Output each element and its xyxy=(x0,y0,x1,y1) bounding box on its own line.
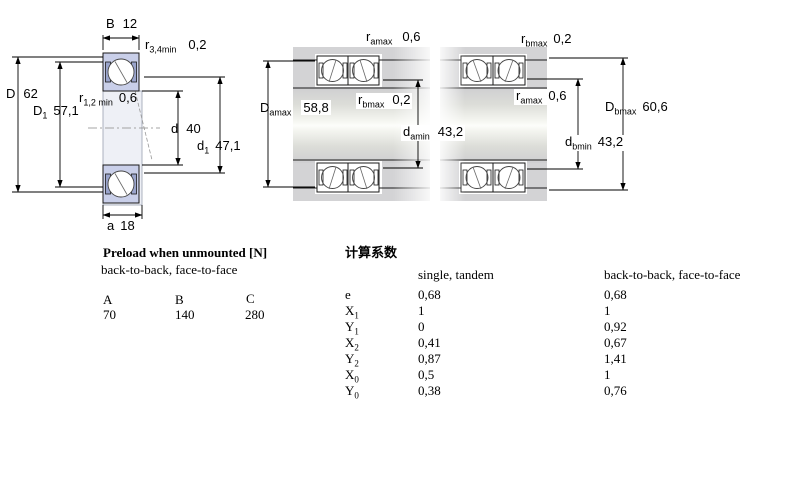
factor-row-Y1: Y100,92 xyxy=(345,319,775,335)
preload-value: 280 xyxy=(245,307,265,323)
dim-label-rbmax-mid: rbmax0,2 xyxy=(356,93,412,109)
paired-arrangement-b xyxy=(440,47,628,201)
bearing-bottom-half xyxy=(103,165,139,203)
dim-label-ramax-mid: ramax0,6 xyxy=(514,89,568,105)
preload-value: 70 xyxy=(103,307,116,323)
dim-label-r34: r3,4min0,2 xyxy=(145,38,206,54)
dim-label-rbmax-top: rbmax0,2 xyxy=(521,32,571,48)
dim-label-D1: D157,1 xyxy=(33,104,79,120)
dim-label-damin: damin43,2 xyxy=(401,125,465,141)
factor-row-X1: X111 xyxy=(345,303,775,319)
dim-label-d1: d147,1 xyxy=(197,139,241,155)
factor-row-X2: X20,410,67 xyxy=(345,335,775,351)
preload-title: Preload when unmounted [N] xyxy=(103,246,267,260)
preload-col-header: B xyxy=(175,292,184,308)
preload-subtitle: back-to-back, face-to-face xyxy=(101,263,237,277)
bearing-datasheet-page: B12 r3,4min0,2 r1,2 min0,6 D62 D157,1 d4… xyxy=(0,0,800,500)
dim-a xyxy=(103,205,142,219)
factors-col1-header: single, tandem xyxy=(418,267,494,283)
preload-value: 140 xyxy=(175,307,195,323)
dim-label-d: d40 xyxy=(171,122,201,136)
dim-D xyxy=(12,57,103,192)
factor-row-e: e0,680,68 xyxy=(345,287,775,303)
dim-label-B: B12 xyxy=(106,17,137,31)
preload-col-header: A xyxy=(103,292,112,308)
dim-label-a: a18 xyxy=(107,219,135,233)
dim-Dbmax xyxy=(549,58,628,190)
bearing-top-half xyxy=(103,53,139,91)
factors-col2-header: back-to-back, face-to-face xyxy=(604,267,740,283)
dim-label-Damax: Damax58,8 xyxy=(260,101,331,117)
factors-title: 计算系数 xyxy=(345,246,397,260)
dim-label-dbmin: dbmin43,2 xyxy=(563,135,625,151)
dim-label-ramax-top: ramax0,6 xyxy=(366,30,420,46)
factor-row-Y2: Y20,871,41 xyxy=(345,351,775,367)
preload-col-header: C xyxy=(246,291,255,307)
factor-row-Y0: Y00,380,76 xyxy=(345,383,775,399)
dim-label-r12: r1,2 min0,6 xyxy=(79,91,137,107)
dim-label-D: D62 xyxy=(6,87,38,101)
dim-label-Dbmax: Dbmax60,6 xyxy=(605,100,668,116)
dim-D1 xyxy=(55,62,103,187)
factors-table: e0,680,68 X111 Y100,92 X20,410,67 Y20,87… xyxy=(345,287,775,399)
factor-row-X0: X00,51 xyxy=(345,367,775,383)
dim-B xyxy=(103,35,139,50)
